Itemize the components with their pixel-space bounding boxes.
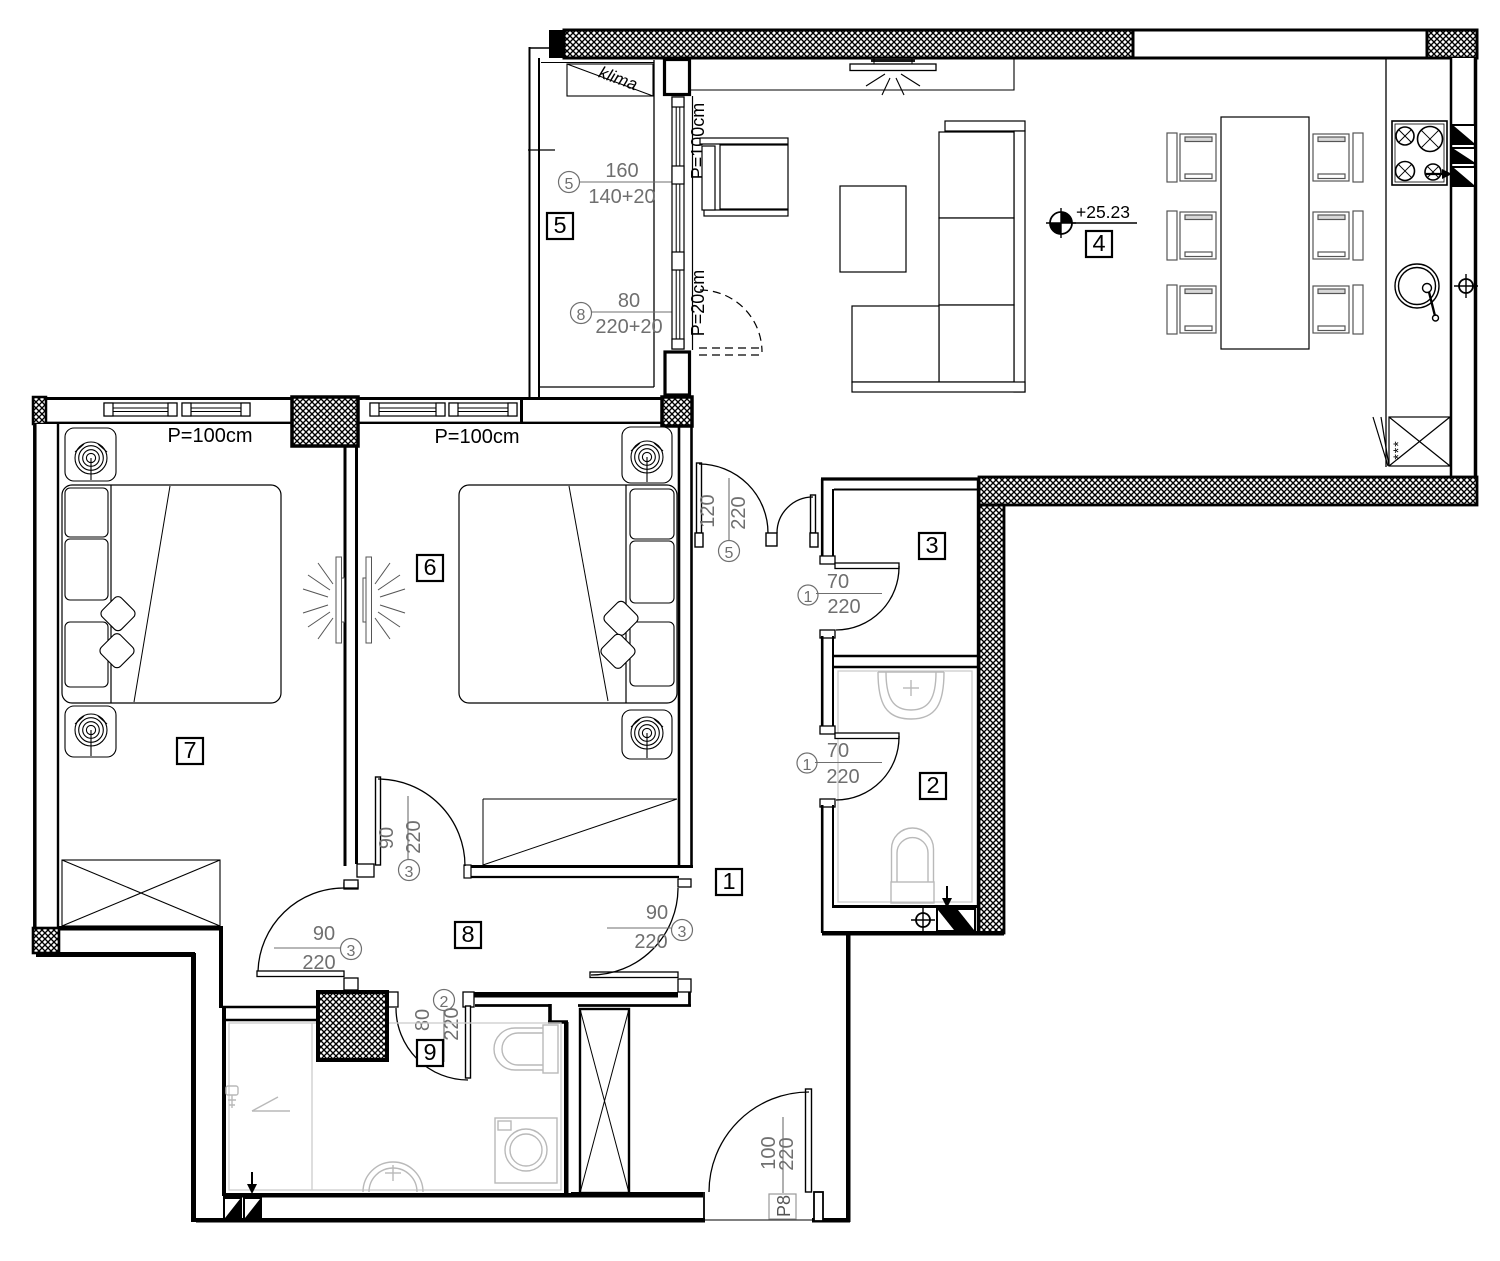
svg-text:5: 5 — [725, 545, 734, 562]
svg-text:3: 3 — [347, 943, 356, 960]
svg-text:5: 5 — [565, 176, 574, 193]
svg-text:2: 2 — [926, 772, 939, 798]
svg-text:P=100cm: P=100cm — [167, 425, 252, 447]
svg-text:3: 3 — [925, 532, 938, 558]
svg-text:220: 220 — [441, 1007, 463, 1040]
svg-text:4: 4 — [1092, 230, 1105, 256]
svg-text:***: *** — [1390, 440, 1406, 459]
svg-text:6: 6 — [423, 554, 436, 580]
svg-text:1: 1 — [803, 757, 812, 774]
svg-text:120: 120 — [697, 494, 719, 527]
svg-text:80: 80 — [618, 290, 640, 312]
svg-text:220: 220 — [728, 496, 750, 529]
svg-text:7: 7 — [183, 737, 196, 763]
svg-text:90: 90 — [313, 923, 335, 945]
svg-text:220: 220 — [827, 596, 860, 618]
svg-text:P=100cm: P=100cm — [434, 426, 519, 448]
svg-text:220: 220 — [634, 931, 667, 953]
svg-text:+25.23: +25.23 — [1076, 202, 1130, 222]
svg-text:P=20cm: P=20cm — [688, 270, 708, 337]
svg-text:8: 8 — [461, 921, 474, 947]
svg-text:3: 3 — [678, 924, 687, 941]
svg-text:9: 9 — [423, 1039, 436, 1065]
svg-text:90: 90 — [376, 827, 398, 849]
svg-text:140+20: 140+20 — [588, 186, 655, 208]
svg-text:220: 220 — [776, 1137, 798, 1170]
svg-text:80: 80 — [412, 1009, 434, 1031]
svg-text:5: 5 — [553, 212, 566, 238]
svg-text:220: 220 — [826, 766, 859, 788]
svg-text:8: 8 — [577, 307, 586, 324]
svg-text:220: 220 — [403, 820, 425, 853]
svg-text:90: 90 — [646, 902, 668, 924]
svg-text:220+20: 220+20 — [595, 316, 662, 338]
svg-text:70: 70 — [827, 571, 849, 593]
svg-text:160: 160 — [605, 160, 638, 182]
svg-text:70: 70 — [827, 740, 849, 762]
svg-text:220: 220 — [302, 952, 335, 974]
svg-text:P8: P8 — [774, 1195, 794, 1217]
svg-text:1: 1 — [722, 868, 735, 894]
svg-text:1: 1 — [804, 589, 813, 606]
svg-text:3: 3 — [405, 864, 414, 881]
